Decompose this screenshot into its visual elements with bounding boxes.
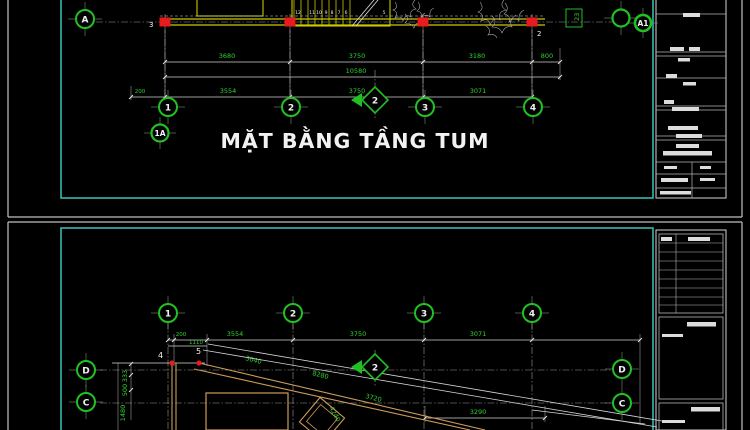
grid-bubble-A: A <box>68 2 102 36</box>
svg-text:3: 3 <box>421 310 427 320</box>
grid-bubble-1-top: 1 <box>151 90 185 124</box>
svg-text:1A: 1A <box>154 129 165 138</box>
svg-text:200: 200 <box>176 332 187 338</box>
dimension-text-top: 3680 3750 3180 800 10580 200 3554 3750 3… <box>135 52 553 95</box>
svg-text:3750: 3750 <box>350 330 367 338</box>
cad-model-space: 12 11 10 9 8 7 6 5 3 2 23 <box>0 0 750 430</box>
rotated-dim-23: 23 <box>573 13 581 21</box>
svg-text:11: 11 <box>309 10 315 16</box>
svg-text:C: C <box>83 399 90 409</box>
grid-bubble-1A-top: 1A <box>144 117 176 149</box>
title-block-top-text-blocks <box>660 13 715 195</box>
svg-text:10580: 10580 <box>346 67 367 75</box>
svg-text:1: 1 <box>165 104 171 114</box>
grid-bubble-4-top: 4 <box>516 90 550 124</box>
svg-text:D: D <box>82 367 89 377</box>
grid-bubble-4-bottom: 4 <box>515 296 549 330</box>
svg-text:5: 5 <box>196 347 201 356</box>
svg-text:1480: 1480 <box>119 405 127 422</box>
svg-text:3554: 3554 <box>220 87 237 95</box>
svg-text:500: 500 <box>121 384 129 396</box>
svg-text:2: 2 <box>372 364 378 374</box>
svg-text:3680: 3680 <box>219 52 236 60</box>
svg-text:3071: 3071 <box>470 87 487 95</box>
svg-text:4: 4 <box>158 351 163 360</box>
svg-text:1110: 1110 <box>189 340 203 346</box>
svg-text:3040: 3040 <box>244 354 262 366</box>
column-label-3: 3 <box>149 21 153 29</box>
dimension-lines-top <box>129 30 562 100</box>
svg-text:2: 2 <box>290 310 296 320</box>
svg-text:3554: 3554 <box>227 330 244 338</box>
grid-bubble-empty <box>604 1 638 35</box>
grid-bubble-C-left: C <box>69 385 103 419</box>
svg-text:8: 8 <box>331 10 334 16</box>
grid-bubble-3-bottom: 3 <box>407 296 441 330</box>
column-label-2: 2 <box>537 30 541 38</box>
svg-text:3180: 3180 <box>469 52 486 60</box>
svg-text:800: 800 <box>541 52 553 60</box>
title-block-bottom-text-blocks <box>661 237 720 423</box>
svg-text:3: 3 <box>422 104 428 114</box>
svg-text:3750: 3750 <box>349 87 366 95</box>
svg-text:3290: 3290 <box>470 408 487 416</box>
svg-text:3750: 3750 <box>349 52 366 60</box>
svg-text:9: 9 <box>325 10 328 16</box>
svg-text:1: 1 <box>165 310 171 320</box>
grid-bubble-2-top: 2 <box>274 90 308 124</box>
grid-bubble-C-right: C <box>605 386 639 420</box>
svg-text:7: 7 <box>338 10 341 16</box>
title-block-top <box>656 0 726 198</box>
svg-text:2: 2 <box>288 104 294 114</box>
drawing-title-top: MẶT BẰNG TẦNG TUM <box>221 125 490 153</box>
stair-tread-numbers: 12 11 10 9 8 7 6 5 <box>295 10 385 16</box>
grid-bubble-3-top: 3 <box>408 90 442 124</box>
plan-lines-bottom <box>112 344 662 430</box>
svg-text:D: D <box>618 366 625 376</box>
svg-text:200: 200 <box>135 89 146 95</box>
svg-text:333: 333 <box>121 370 129 382</box>
title-block-bottom <box>656 230 726 430</box>
svg-text:A: A <box>82 16 89 26</box>
svg-text:5: 5 <box>383 10 386 16</box>
grid-bubble-1-bottom: 1 <box>151 296 185 330</box>
grid-bubble-2-bottom: 2 <box>276 296 310 330</box>
grid-bubble-D-right: D <box>605 352 639 386</box>
svg-text:A1: A1 <box>637 19 648 28</box>
svg-text:4: 4 <box>529 310 535 320</box>
grid-bubble-D-left: D <box>69 353 103 387</box>
svg-text:3071: 3071 <box>470 330 487 338</box>
svg-text:6: 6 <box>345 10 348 16</box>
svg-text:12: 12 <box>295 10 301 16</box>
svg-text:10: 10 <box>316 10 322 16</box>
svg-text:C: C <box>619 400 626 410</box>
svg-text:2: 2 <box>372 97 378 107</box>
svg-text:4: 4 <box>530 104 536 114</box>
